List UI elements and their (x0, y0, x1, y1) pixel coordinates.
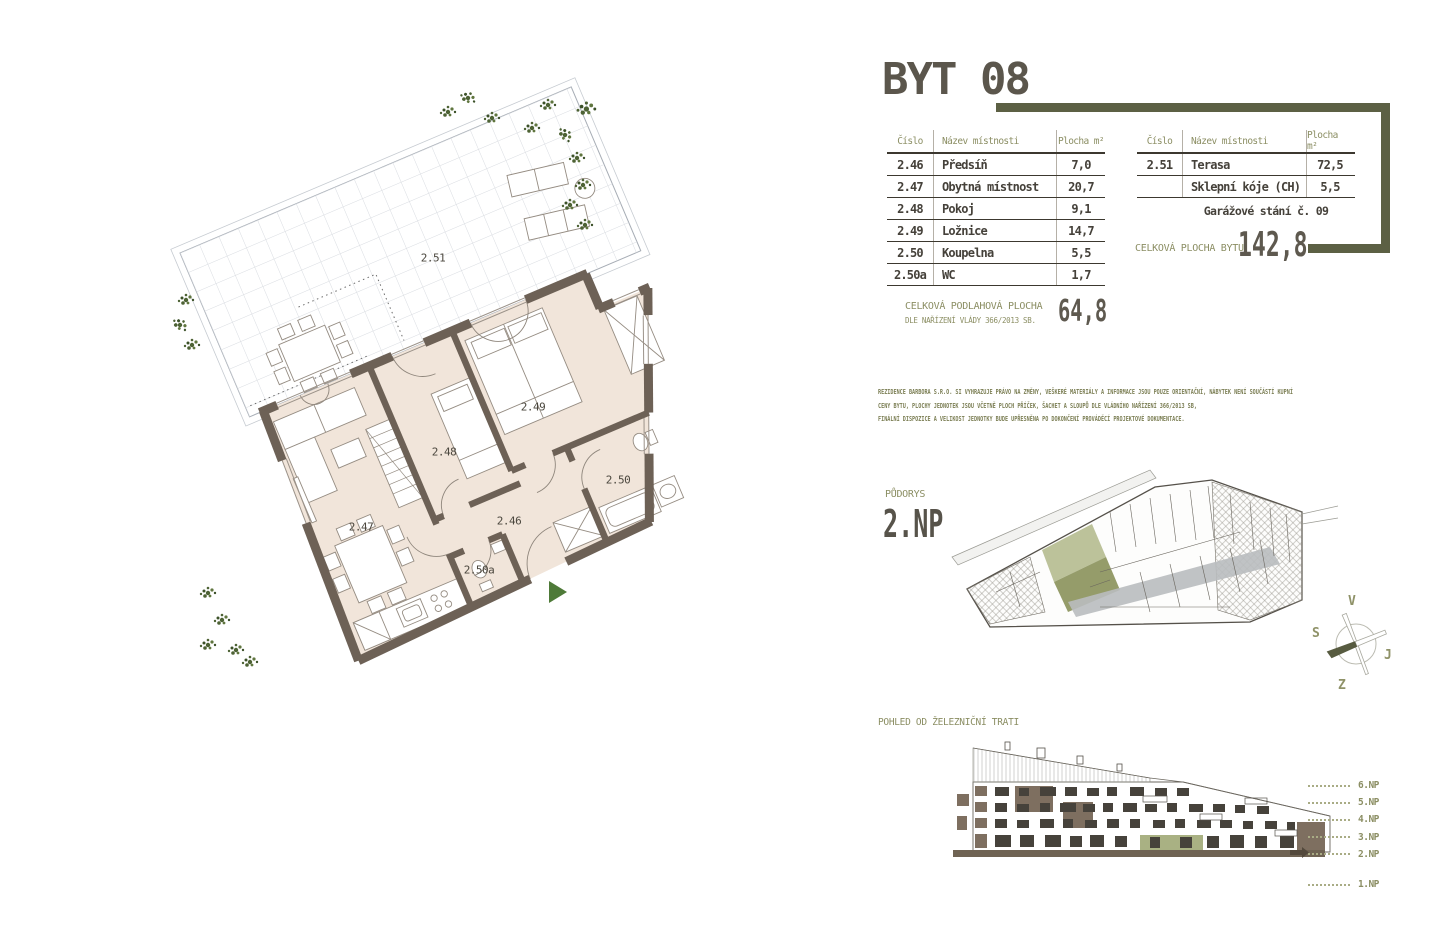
room-label-koupelna: 2.50 (606, 474, 631, 487)
col-header-nazev: Název místnosti (934, 130, 1057, 152)
floor-level-row: 2.NP (1308, 846, 1379, 863)
compass-label-south: J (1384, 648, 1392, 663)
col-header-nazev: Název místnosti (1183, 130, 1307, 152)
elevation-drawing (945, 736, 1345, 871)
room-number: 2.46 (887, 154, 934, 175)
accent-bar-top (996, 103, 1390, 112)
disclaimer-line: CENY BYTU, PLOCHY JEDNOTEK JSOU VČETNĚ P… (878, 400, 1377, 414)
room-label-obytna: 2.47 (349, 521, 374, 534)
room-name: Obytná místnost (934, 176, 1057, 197)
accent-bar-right (1381, 103, 1390, 253)
room-area: 1,7 (1057, 264, 1105, 285)
compass: V S J Z (1312, 596, 1402, 696)
room-name: WC (934, 264, 1057, 285)
room-number: 2.49 (887, 220, 934, 241)
room-label-loznice: 2.49 (521, 401, 546, 414)
col-header-cislo: Číslo (1137, 130, 1183, 152)
floor-level-label: 4.NP (1358, 814, 1379, 825)
room-area: 5,5 (1307, 176, 1353, 197)
room-label-terasa: 2.51 (421, 252, 446, 265)
dotted-leader (1308, 853, 1350, 855)
dotted-leader (1308, 802, 1350, 804)
room-table-left-body: 2.46 Předsíň 7,0 2.47 Obytná místnost 20… (887, 154, 1105, 286)
floor-level-label: 2.NP (1358, 849, 1379, 860)
room-area: 14,7 (1057, 220, 1105, 241)
room-name: Sklepní kóje (CH) (1183, 176, 1307, 197)
floor-area-value: 64,8 (1058, 297, 1107, 327)
dotted-leader (1308, 884, 1350, 886)
room-table-right-body: 2.51 Terasa 72,5 Sklepní kóje (CH) 5,5 (1137, 154, 1355, 198)
room-table-left-header: Číslo Název místnosti Plocha m² (887, 130, 1105, 154)
compass-label-north: S (1312, 626, 1320, 641)
table-row: 2.48 Pokoj 9,1 (887, 198, 1105, 220)
table-row: 2.50a WC 1,7 (887, 264, 1105, 286)
floor-level-row: 1.NP (1308, 876, 1379, 893)
room-name: Ložnice (934, 220, 1057, 241)
floor-level-row: 3.NP (1308, 829, 1379, 846)
room-table-right-header: Číslo Název místnosti Plocha m² (1137, 130, 1355, 154)
room-number: 2.50a (887, 264, 934, 285)
col-header-cislo: Číslo (887, 130, 934, 152)
table-row: Sklepní kóje (CH) 5,5 (1137, 176, 1355, 198)
floor-area-label: CELKOVÁ PODLAHOVÁ PLOCHA (905, 301, 1042, 312)
dotted-leader (1308, 836, 1350, 838)
room-name: Pokoj (934, 198, 1057, 219)
elevation (945, 736, 1345, 875)
apartment-datasheet-page: 2.51 2.49 2.48 2.50 2.47 2.46 2.50a BYT … (0, 0, 1450, 937)
table-row: 2.46 Předsíň 7,0 (887, 154, 1105, 176)
floor-level-label: 5.NP (1358, 797, 1379, 808)
floor-level-row: 5.NP (1308, 794, 1379, 811)
floor-level-label: 3.NP (1358, 832, 1379, 843)
col-header-plocha: Plocha m² (1057, 130, 1105, 152)
room-number: 2.48 (887, 198, 934, 219)
floor-area-sublabel: DLE NAŘÍZENÍ VLÁDY 366/2013 SB. (905, 316, 1036, 325)
floor-level-labels: 6.NP 5.NP 4.NP 3.NP 2.NP (1308, 777, 1379, 893)
compass-rose-icon (1312, 596, 1402, 696)
floor-level-label: 1.NP (1358, 879, 1379, 890)
room-number: 2.51 (1137, 154, 1183, 175)
dotted-leader (1308, 819, 1350, 821)
floor-level-row: 6.NP (1308, 777, 1379, 794)
site-plan-caption: PŮDORYS (885, 489, 925, 500)
floor-level-label: 6.NP (1358, 780, 1379, 791)
compass-label-west: Z (1338, 678, 1346, 693)
room-name: Koupelna (934, 242, 1057, 263)
disclaimer-line: REZIDENCE BARBORA S.R.O. SI VYHRAZUJE PR… (878, 386, 1377, 400)
elevation-caption: POHLED OD ŽELEZNIČNÍ TRATI (878, 717, 1019, 728)
room-number: 2.50 (887, 242, 934, 263)
entrance-arrow-icon (549, 581, 567, 603)
site-plan (950, 452, 1340, 656)
room-number: 2.47 (887, 176, 934, 197)
table-row: 2.49 Ložnice 14,7 (887, 220, 1105, 242)
room-area: 5,5 (1057, 242, 1105, 263)
accent-bar-bottom (1308, 244, 1390, 253)
room-label-wc: 2.50a (464, 564, 495, 577)
ground-line (953, 850, 1325, 857)
room-area: 9,1 (1057, 198, 1105, 219)
col-header-plocha: Plocha m² (1307, 130, 1353, 152)
floorplan: 2.51 2.49 2.48 2.50 2.47 2.46 2.50a (140, 55, 710, 705)
room-area: 72,5 (1307, 154, 1353, 175)
room-name: Předsíň (934, 154, 1057, 175)
floorplan-drawing (140, 55, 710, 705)
garage-note: Garážové stání č. 09 (1137, 198, 1355, 218)
room-label-pokoj: 2.48 (432, 446, 457, 459)
table-row: 2.50 Koupelna 5,5 (887, 242, 1105, 264)
disclaimer-line: FINÁLNÍ DISPOZICE A VELIKOST JEDNOTKY BU… (878, 413, 1377, 427)
total-area-value: 142,8 (1238, 228, 1308, 262)
room-name: Terasa (1183, 154, 1307, 175)
site-plan-floor: 2.NP (883, 505, 943, 543)
room-table-left: Číslo Název místnosti Plocha m² 2.46 Pře… (887, 130, 1105, 286)
floor-level-row: 4.NP (1308, 811, 1379, 828)
table-row: 2.51 Terasa 72,5 (1137, 154, 1355, 176)
page-title: BYT 08 (882, 58, 1029, 102)
room-table-right: Číslo Název místnosti Plocha m² 2.51 Ter… (1137, 130, 1355, 218)
compass-label-east: V (1348, 594, 1356, 609)
room-area: 20,7 (1057, 176, 1105, 197)
room-number (1137, 176, 1183, 197)
elevation-unit-highlight (1140, 835, 1203, 850)
room-label-predsin: 2.46 (497, 515, 522, 528)
room-area: 7,0 (1057, 154, 1105, 175)
disclaimer-text: REZIDENCE BARBORA S.R.O. SI VYHRAZUJE PR… (878, 386, 1377, 427)
dotted-leader (1308, 785, 1350, 787)
table-row: 2.47 Obytná místnost 20,7 (887, 176, 1105, 198)
current-floor-arrow-icon (1290, 847, 1310, 858)
total-area-label: CELKOVÁ PLOCHA BYTU (1135, 243, 1244, 254)
site-plan-drawing (950, 452, 1340, 652)
